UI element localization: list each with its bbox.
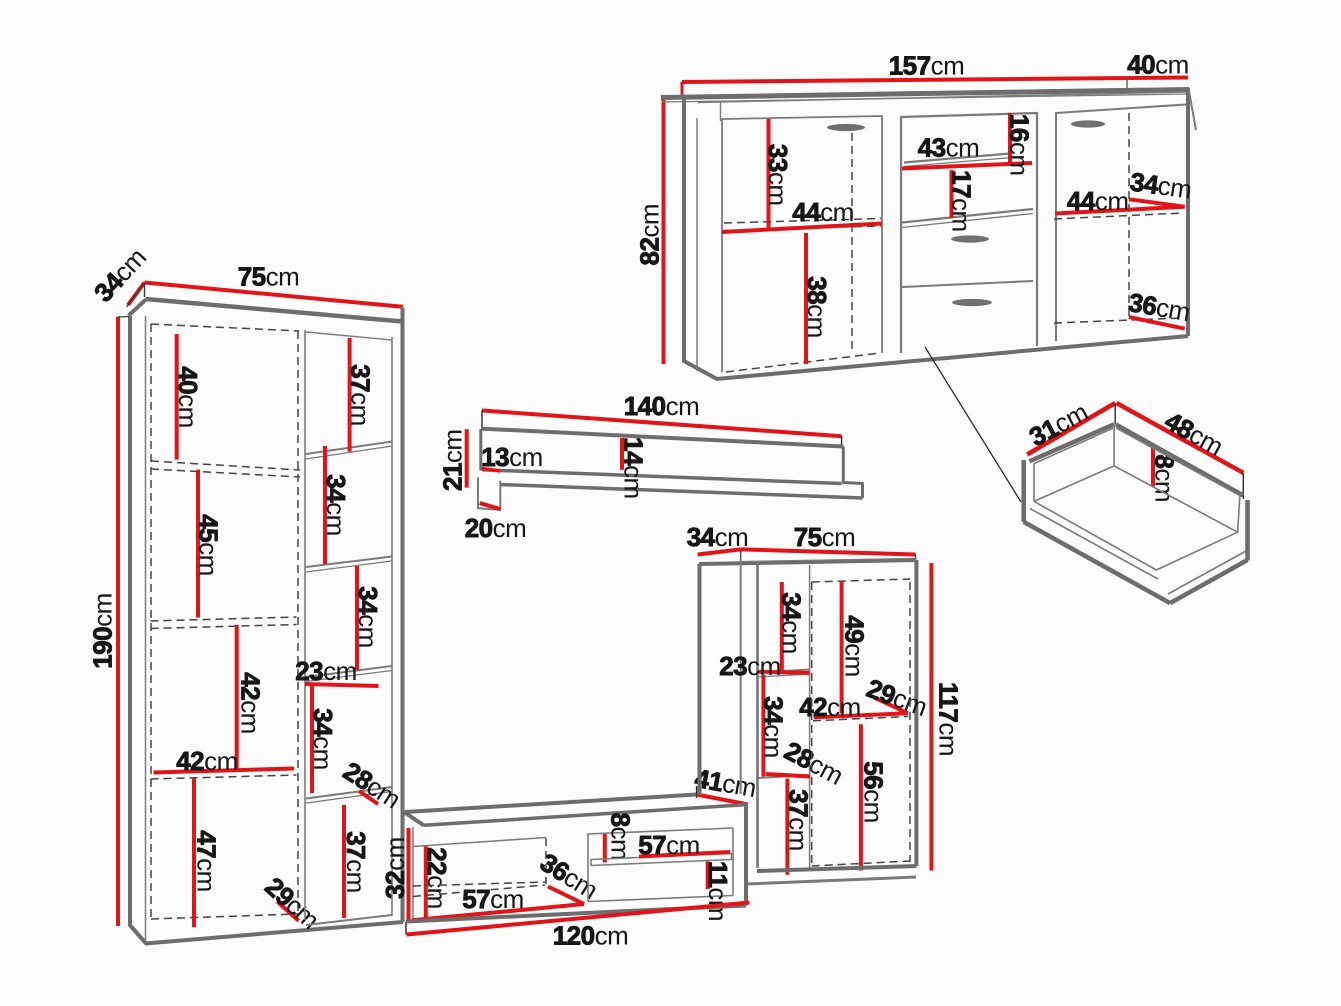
svg-text:37cm: 37cm (784, 789, 814, 851)
svg-text:190cm: 190cm (88, 593, 118, 669)
svg-text:34cm: 34cm (777, 592, 807, 654)
svg-text:57cm: 57cm (462, 884, 524, 914)
svg-text:34cm: 34cm (308, 708, 338, 770)
svg-text:33cm: 33cm (763, 144, 793, 206)
svg-text:37cm: 37cm (341, 831, 371, 893)
svg-text:13cm: 13cm (481, 442, 543, 472)
svg-text:40cm: 40cm (173, 366, 203, 428)
svg-text:40cm: 40cm (1127, 50, 1189, 80)
svg-text:49cm: 49cm (840, 615, 870, 677)
svg-text:22cm: 22cm (422, 847, 452, 909)
svg-text:17cm: 17cm (947, 170, 977, 232)
svg-text:8cm: 8cm (1150, 454, 1180, 502)
svg-text:45cm: 45cm (194, 514, 224, 576)
svg-text:47cm: 47cm (192, 830, 222, 892)
svg-text:42cm: 42cm (799, 692, 861, 722)
svg-text:82cm: 82cm (635, 204, 665, 266)
svg-text:21cm: 21cm (437, 429, 467, 491)
svg-text:34cm: 34cm (321, 474, 351, 536)
svg-text:57cm: 57cm (638, 830, 700, 860)
svg-text:42cm: 42cm (176, 746, 238, 776)
svg-text:23cm: 23cm (719, 651, 781, 681)
svg-text:44cm: 44cm (1067, 186, 1129, 216)
svg-text:157cm: 157cm (889, 51, 965, 81)
svg-text:44cm: 44cm (792, 197, 854, 227)
svg-text:8cm: 8cm (605, 813, 635, 861)
svg-text:42cm: 42cm (236, 672, 266, 734)
svg-text:37cm: 37cm (346, 364, 376, 426)
svg-text:120cm: 120cm (553, 921, 629, 951)
svg-text:23cm: 23cm (295, 656, 357, 686)
svg-text:34cm: 34cm (687, 522, 749, 552)
svg-text:140cm: 140cm (624, 391, 700, 421)
svg-text:11cm: 11cm (703, 861, 733, 921)
svg-text:43cm: 43cm (918, 133, 980, 163)
svg-text:75cm: 75cm (238, 262, 300, 292)
svg-text:20cm: 20cm (465, 513, 527, 543)
svg-text:34cm: 34cm (759, 696, 789, 758)
svg-text:117cm: 117cm (934, 682, 964, 756)
svg-text:16cm: 16cm (1004, 114, 1034, 176)
svg-text:32cm: 32cm (380, 837, 410, 899)
svg-text:34cm: 34cm (353, 586, 383, 648)
svg-text:38cm: 38cm (802, 276, 832, 338)
svg-text:56cm: 56cm (859, 761, 889, 823)
svg-text:14cm: 14cm (618, 437, 648, 499)
svg-text:75cm: 75cm (794, 522, 856, 552)
